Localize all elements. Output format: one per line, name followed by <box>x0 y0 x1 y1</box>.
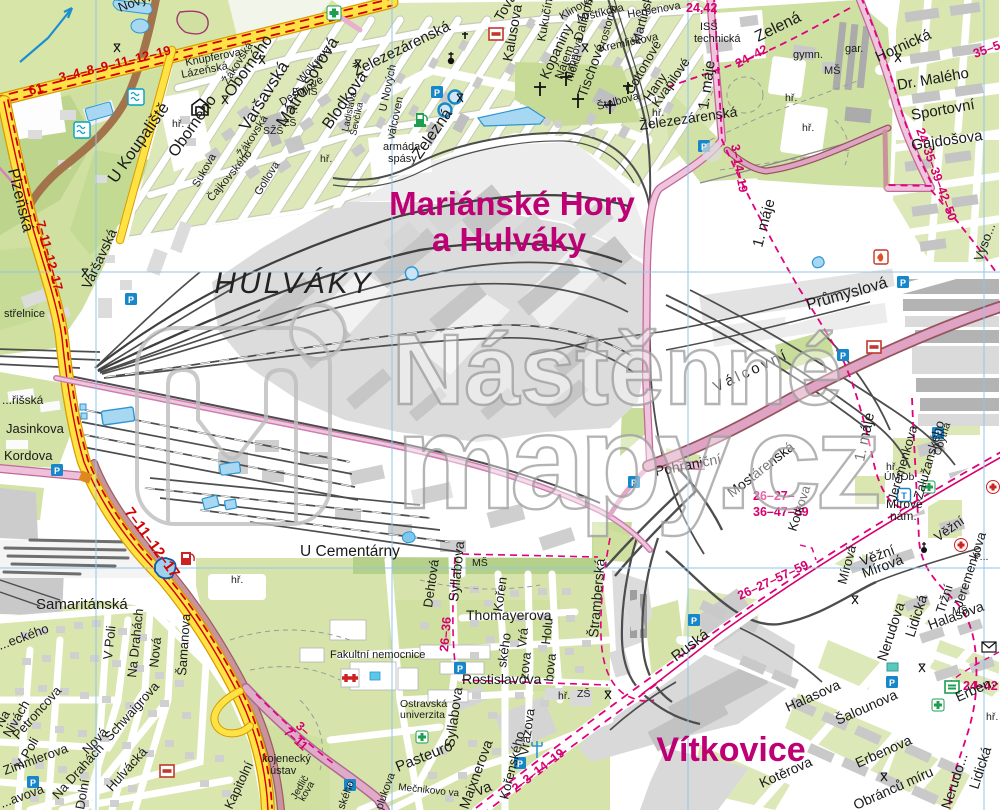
svg-text:zova: zova <box>516 651 534 681</box>
svg-text:Jasinkova: Jasinkova <box>6 421 65 436</box>
svg-text:mapy.cz: mapy.cz <box>396 386 878 537</box>
svg-text:gymn.: gymn. <box>793 49 823 61</box>
svg-text:...řišská: ...řišská <box>2 393 44 407</box>
svg-text:Vrá: Vrá <box>514 626 531 648</box>
svg-text:hř.: hř. <box>986 711 998 723</box>
svg-text:Mariánské Hory: Mariánské Hory <box>389 185 635 222</box>
svg-text:hř.: hř. <box>802 122 814 134</box>
svg-text:Fakultní nemocnice: Fakultní nemocnice <box>330 649 425 661</box>
svg-text:Samaritánská: Samaritánská <box>36 596 128 613</box>
svg-text:a Hulváky: a Hulváky <box>432 221 587 258</box>
svg-text:HULVÁKY: HULVÁKY <box>214 267 373 300</box>
svg-text:bova: bova <box>541 652 559 682</box>
svg-text:hř.: hř. <box>231 574 243 586</box>
svg-text:ISŠ: ISŠ <box>700 20 718 33</box>
svg-text:Thomayerova: Thomayerova <box>466 607 552 623</box>
svg-text:U Cementárny: U Cementárny <box>300 543 400 560</box>
svg-text:technická: technická <box>694 33 741 45</box>
svg-text:ústav: ústav <box>270 765 297 777</box>
svg-text:MŠ: MŠ <box>472 556 488 569</box>
svg-text:Kordova: Kordova <box>4 448 53 463</box>
svg-text:Holu: Holu <box>538 617 556 645</box>
svg-text:MŠ: MŠ <box>824 64 841 77</box>
svg-text:hř.: hř. <box>320 153 332 165</box>
svg-text:střelnice: střelnice <box>4 308 45 320</box>
svg-text:univerzita: univerzita <box>400 709 445 721</box>
svg-text:hř.: hř. <box>785 92 797 104</box>
svg-text:gar.: gar. <box>845 43 863 55</box>
svg-text:kojenecký: kojenecký <box>262 753 311 765</box>
svg-text:nám.: nám. <box>890 509 917 523</box>
svg-text:24,42: 24,42 <box>686 1 717 15</box>
svg-text:hř.: hř. <box>558 690 570 702</box>
svg-text:ZŠ: ZŠ <box>577 687 590 700</box>
